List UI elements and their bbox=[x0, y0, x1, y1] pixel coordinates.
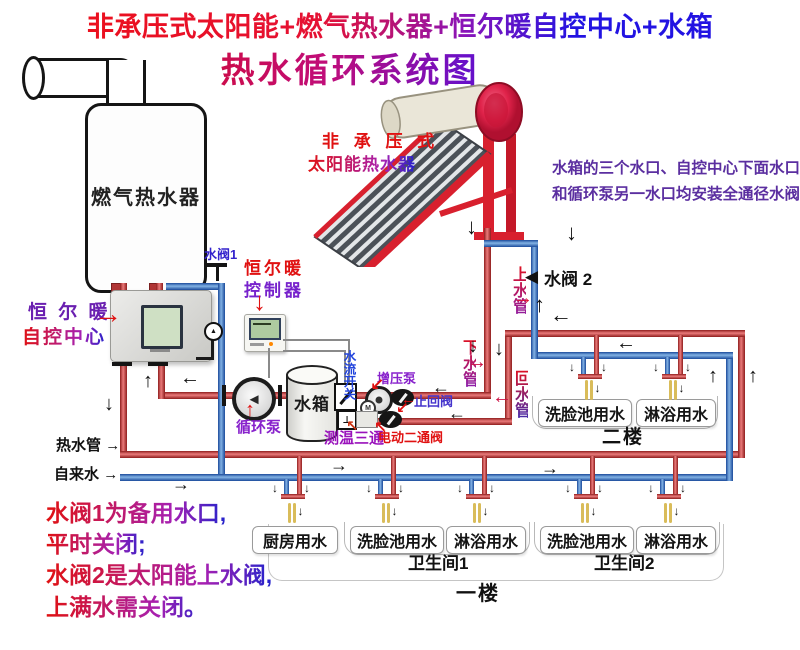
branch-red-drop bbox=[594, 335, 599, 379]
flow-arrow-icon: ← bbox=[550, 304, 572, 326]
right-cold-riser bbox=[726, 352, 733, 481]
branch-blue-drop bbox=[660, 479, 665, 494]
flow-arrow-icon: ↓ bbox=[601, 361, 607, 373]
branch-red-drop bbox=[297, 456, 302, 499]
flow-arrow-icon: ↓ bbox=[674, 505, 680, 517]
flow-arrow-icon: ↓ bbox=[483, 505, 489, 517]
flow-arrow-icon: ↓ bbox=[565, 482, 571, 494]
floor1-label: 一楼 bbox=[456, 583, 500, 606]
floor2-fixture-shower: 淋浴用水 bbox=[636, 399, 716, 427]
valve-tick-1 bbox=[112, 362, 132, 366]
arrow-right-icon: → bbox=[103, 466, 118, 483]
pointer-supply-pipe: → bbox=[513, 288, 533, 308]
solar-label-1: 非 承 压 式 bbox=[322, 132, 439, 152]
flow-arrow-icon: ↓ bbox=[298, 505, 304, 517]
note-bottom-1: 水阀1为备用水口, bbox=[46, 500, 226, 526]
floor1-fixture-basin1: 洗脸池用水 bbox=[350, 526, 444, 554]
flue-pipe-opening bbox=[22, 56, 45, 100]
pointer-to-booster-pump: ↙ bbox=[370, 376, 384, 393]
branch-red-drop bbox=[482, 456, 487, 499]
flow-arrow-icon: ↑ bbox=[748, 366, 758, 386]
note-bottom-3: 水阀2是太阳能上水阀, bbox=[46, 562, 272, 588]
pointer-to-check-valve-2: ↙ bbox=[396, 401, 409, 416]
flow-arrow-icon: ↓ bbox=[104, 394, 114, 414]
controller-wire-1 bbox=[268, 348, 270, 378]
tap-water-label: 自来水 → bbox=[54, 466, 118, 483]
controller-wire-3h bbox=[283, 350, 346, 352]
flow-arrow-icon: ↓ bbox=[680, 482, 686, 494]
faucet-stub bbox=[674, 380, 677, 400]
flow-arrow-icon: ↓ bbox=[489, 482, 495, 494]
solar-down-pipe bbox=[484, 228, 491, 399]
gas-heater-label: 燃气热水器 bbox=[91, 187, 201, 210]
bathroom1-label: 卫生间1 bbox=[408, 554, 468, 574]
controller-button-row bbox=[250, 343, 264, 346]
faucet-stub bbox=[288, 503, 291, 523]
hot-water-system-diagram: 非承压式太阳能+燃气热水器+恒尔暖自控中心+水箱 热水循环系统图 燃气热水器 bbox=[0, 0, 800, 650]
faucet-stub bbox=[581, 503, 584, 523]
controller-wire-2h bbox=[283, 339, 350, 341]
flow-arrow-icon: ↓ bbox=[272, 482, 278, 494]
branch-red-drop bbox=[590, 456, 595, 499]
faucet-stub bbox=[590, 380, 593, 400]
pointer-return-pipe: ← bbox=[492, 387, 512, 407]
water-tank-label: 水箱 bbox=[286, 395, 338, 415]
flow-arrow-icon: ↓ bbox=[648, 482, 654, 494]
flow-arrow-icon: ↓ bbox=[457, 482, 463, 494]
flow-arrow-icon: → bbox=[541, 459, 559, 477]
flow-arrow-icon: ↓ bbox=[466, 216, 477, 238]
branch-red-drop bbox=[673, 456, 678, 499]
right-hot-riser bbox=[738, 330, 745, 458]
branch-mixer-bar bbox=[466, 494, 490, 499]
branch-mixer-bar bbox=[281, 494, 305, 499]
branch-blue-drop bbox=[581, 357, 586, 374]
branch-mixer-bar bbox=[574, 494, 598, 499]
pointer-to-circulation-pump: ↑ bbox=[245, 400, 255, 420]
pointer-to-electric-valve: ↖ bbox=[374, 420, 387, 435]
solar-label-2: 太阳能热水器 bbox=[308, 155, 416, 175]
control-bottom-left-pipe bbox=[120, 360, 127, 458]
flow-arrow-icon: ← bbox=[616, 333, 636, 353]
faucet-stub bbox=[382, 503, 385, 523]
floor2-label: 二楼 bbox=[602, 427, 644, 449]
flow-arrow-icon: ↑ bbox=[534, 294, 545, 316]
flow-arrow-icon: → bbox=[330, 456, 348, 474]
gas-heater: 燃气热水器 bbox=[85, 103, 207, 293]
valve-tick-4 bbox=[278, 385, 282, 406]
flow-arrow-icon: → bbox=[172, 475, 190, 493]
flow-arrow-icon: ↑ bbox=[708, 366, 718, 386]
valve1-stem bbox=[216, 266, 220, 281]
valve2-marker-icon: ◀ bbox=[525, 268, 538, 285]
floor2-fixture-basin: 洗脸池用水 bbox=[538, 399, 632, 427]
flow-arrow-icon: ← bbox=[180, 368, 200, 388]
branch-mixer-bar bbox=[662, 374, 686, 379]
flow-arrow-icon: ← bbox=[432, 378, 450, 396]
controller-label-1: 恒尔暖 bbox=[244, 259, 304, 279]
flow-arrow-icon: ↓ bbox=[566, 222, 577, 244]
branch-blue-drop bbox=[378, 479, 383, 494]
flow-arrow-icon: ↓ bbox=[591, 505, 597, 517]
branch-red-drop bbox=[391, 456, 396, 499]
valve-tick-3 bbox=[222, 385, 226, 406]
circulation-pump-label: 循环泵 bbox=[236, 419, 281, 436]
flow-arrow-icon: ↓ bbox=[679, 382, 685, 394]
heater-cold-elbow bbox=[166, 283, 225, 290]
electric-valve-label: 电动二通阀 bbox=[378, 431, 443, 446]
flow-arrow-icon: ↑ bbox=[143, 371, 153, 391]
flow-arrow-icon: ↓ bbox=[494, 339, 504, 359]
branch-blue-drop bbox=[665, 357, 670, 374]
flow-arrow-icon: ↓ bbox=[392, 505, 398, 517]
flow-arrow-icon: ↓ bbox=[304, 482, 310, 494]
flue-pipe-vertical bbox=[106, 60, 146, 109]
return-vertical bbox=[505, 337, 512, 425]
flow-arrow-icon: ↓ bbox=[597, 482, 603, 494]
control-bottom-right-stub bbox=[158, 360, 165, 399]
controller-screen bbox=[249, 318, 281, 340]
floor1-fixture-shower2: 淋浴用水 bbox=[636, 526, 716, 554]
branch-blue-drop bbox=[469, 479, 474, 494]
pointer-to-control-center: → bbox=[94, 300, 122, 328]
faucet-stub bbox=[669, 503, 672, 523]
valve-tick-2 bbox=[148, 362, 168, 366]
floor1-fixture-kitchen: 厨房用水 bbox=[252, 526, 338, 554]
bathroom2-label: 卫生间2 bbox=[594, 554, 654, 574]
arrow-right-icon: → bbox=[105, 437, 120, 454]
water-tank-top bbox=[286, 365, 338, 385]
tap-water-main bbox=[120, 474, 733, 481]
note-bottom-4: 上满水需关闭。 bbox=[46, 594, 207, 620]
flow-arrow-icon: ↓ bbox=[366, 482, 372, 494]
controller-button-dot bbox=[269, 342, 273, 346]
faucet-stub bbox=[293, 503, 296, 523]
branch-red-drop bbox=[678, 335, 683, 379]
branch-mixer-bar bbox=[657, 494, 681, 499]
floor1-fixture-basin2: 洗脸池用水 bbox=[540, 526, 634, 554]
pointer-to-temp-tee: ↖ bbox=[346, 419, 359, 434]
note-top-right-2: 和循环泵另一水口均安装全通径水阀 bbox=[552, 186, 800, 204]
branch-mixer-bar bbox=[375, 494, 399, 499]
gauge-wire-h bbox=[196, 357, 214, 360]
pointer-down-pipe: → bbox=[467, 352, 487, 372]
valve1-label: 水阀1 bbox=[204, 248, 237, 263]
flow-arrow-icon: ↓ bbox=[653, 361, 659, 373]
faucet-stub bbox=[664, 503, 667, 523]
branch-mixer-bar bbox=[578, 374, 602, 379]
note-top-right-1: 水箱的三个水口、自控中心下面水口 bbox=[552, 160, 800, 178]
faucet-stub bbox=[478, 503, 481, 523]
solar-supply-top bbox=[484, 240, 538, 247]
faucet-stub bbox=[473, 503, 476, 523]
floor1-fixture-shower1: 淋浴用水 bbox=[446, 526, 526, 554]
valve2-label: 水阀 2 bbox=[544, 270, 592, 290]
flow-arrow-icon: ↓ bbox=[685, 361, 691, 373]
faucet-stub bbox=[669, 380, 672, 400]
return-pipe-label: 回水管 bbox=[512, 370, 528, 430]
flow-arrow-icon: ↓ bbox=[595, 382, 601, 394]
branch-blue-drop bbox=[577, 479, 582, 494]
hot-pipe-label: 热水管 → bbox=[56, 437, 120, 454]
branch-blue-drop bbox=[284, 479, 289, 494]
hot-water-main bbox=[120, 451, 745, 458]
control-center-label-2: 自控中心 bbox=[22, 327, 106, 349]
page-title: 非承压式太阳能+燃气热水器+恒尔暖自控中心+水箱 bbox=[0, 12, 800, 43]
gauge-wire-v bbox=[211, 338, 214, 359]
flow-arrow-icon: ← bbox=[448, 404, 466, 422]
control-center-display bbox=[141, 305, 183, 349]
flow-switch-label: 水流开关 bbox=[342, 350, 355, 410]
flow-arrow-icon: ↓ bbox=[398, 482, 404, 494]
pointer-to-controller: ↓ bbox=[253, 288, 266, 314]
flow-arrow-icon: ↓ bbox=[569, 361, 575, 373]
note-bottom-2: 平时关闭; bbox=[46, 531, 146, 557]
faucet-stub bbox=[586, 503, 589, 523]
faucet-stub bbox=[585, 380, 588, 400]
valve1-pipe bbox=[218, 283, 225, 481]
control-center-logo bbox=[150, 349, 170, 352]
gauge-icon: ▲ bbox=[204, 322, 223, 341]
controller-screen-digits bbox=[253, 323, 271, 325]
faucet-stub bbox=[387, 503, 390, 523]
